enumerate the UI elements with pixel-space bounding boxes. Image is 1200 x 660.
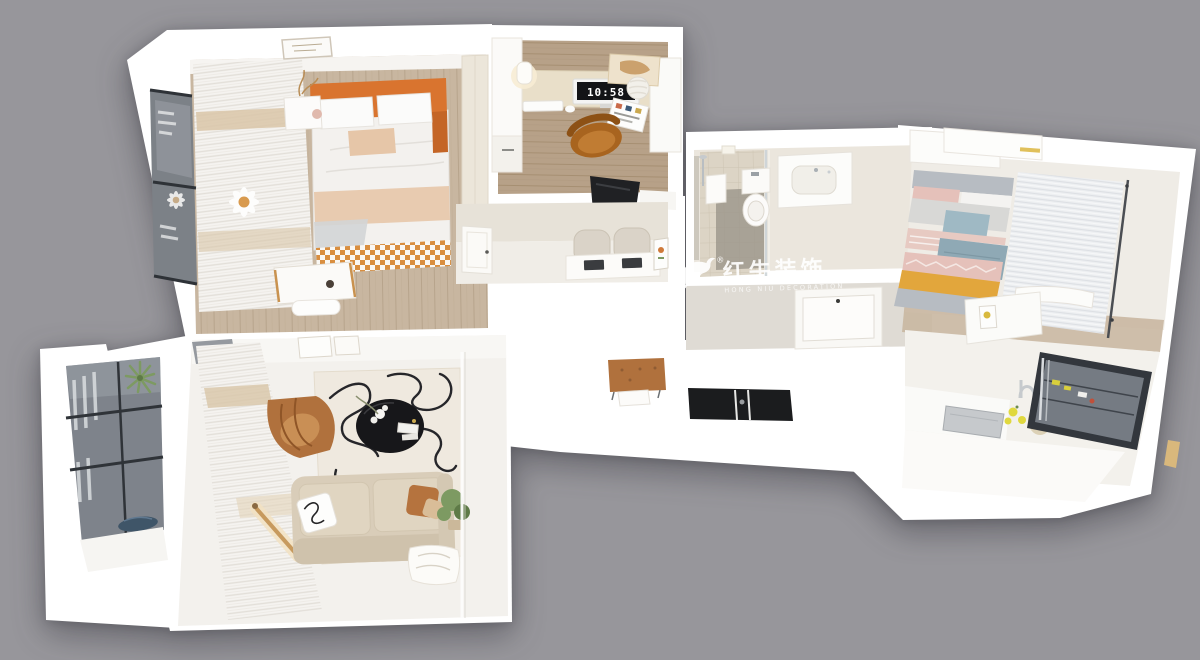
study-cabinet [492, 136, 522, 172]
books [398, 423, 419, 434]
headboard-side [432, 111, 448, 153]
accent-pillow [348, 128, 396, 156]
desk-lamp [517, 62, 532, 84]
door-handle [485, 250, 489, 254]
mouse [565, 106, 575, 113]
apartment-render-stage: 10:58 [0, 0, 1200, 660]
dining-room [456, 202, 668, 284]
bedroom1-window [150, 90, 197, 284]
curtain-tan-stripe [204, 384, 272, 408]
pillow [319, 97, 374, 129]
floor-cushion [292, 299, 340, 316]
laundry-basket [627, 77, 649, 99]
cooktop [688, 388, 793, 421]
vanity-sink [778, 152, 852, 208]
pillow [377, 93, 432, 125]
decor-ball [312, 109, 322, 119]
folded-towels [618, 390, 650, 406]
keyboard [523, 101, 563, 112]
faucet [814, 168, 818, 172]
dining-door [462, 226, 492, 274]
placemat [584, 260, 604, 271]
leaning-frame [298, 336, 332, 358]
hall-cabinet-area [686, 282, 932, 350]
monitor-clock: 10:58 [587, 86, 625, 99]
dining-table [566, 252, 660, 280]
rod-bracket [1110, 318, 1114, 322]
rod-bracket [1125, 184, 1129, 188]
cooktop-knob [740, 400, 745, 405]
placemat [622, 258, 642, 269]
bed-throw [314, 186, 450, 226]
living-room [178, 335, 508, 626]
watermark-brand-cn: 红牛装饰 [722, 256, 827, 286]
bench-item [326, 280, 334, 288]
wall-art-frame [282, 37, 332, 59]
bedroom-1 [150, 37, 488, 334]
entry-mat [408, 545, 459, 584]
bedroom1-bed [310, 78, 451, 274]
bed-bench [274, 262, 356, 304]
mirror-sliver [694, 156, 699, 260]
dining-art-frame [654, 238, 668, 270]
towel [706, 174, 726, 204]
cabinet-key [836, 299, 840, 303]
leaning-frame [334, 336, 360, 355]
ceiling-light [722, 146, 735, 154]
floor-plan-render: 10:58 [0, 0, 1200, 660]
shower-head [699, 155, 707, 159]
